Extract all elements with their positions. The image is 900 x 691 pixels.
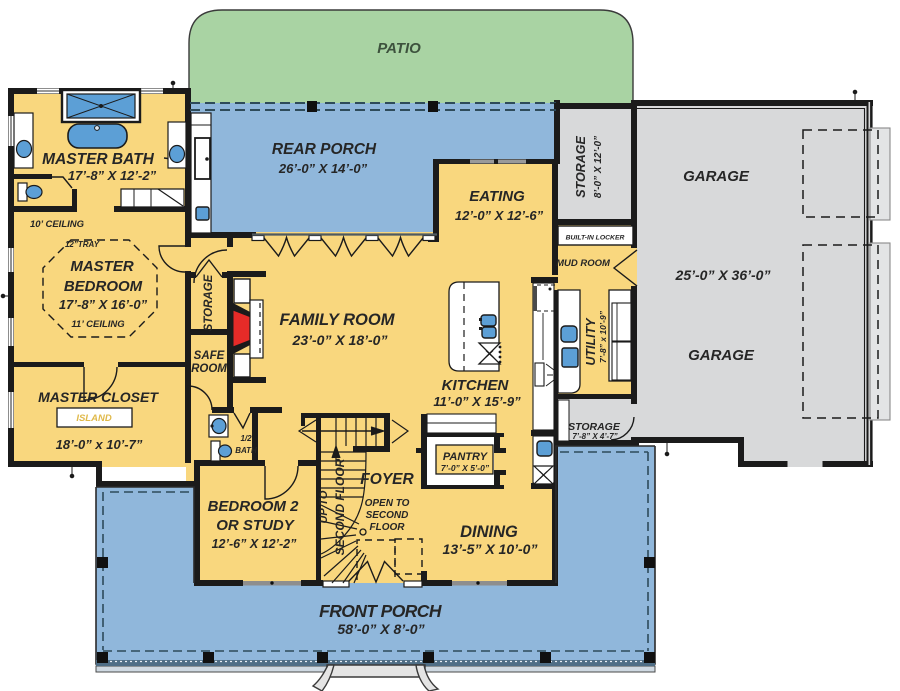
svg-text:GARAGE: GARAGE: [688, 347, 755, 364]
svg-text:11’ CEILING: 11’ CEILING: [71, 319, 125, 330]
svg-text:UTILITY: UTILITY: [584, 317, 598, 366]
svg-text:BATH: BATH: [235, 446, 257, 455]
svg-text:GARAGE: GARAGE: [683, 168, 750, 185]
svg-text:FLOOR: FLOOR: [370, 522, 406, 533]
svg-text:12’-6” X 12’-2”: 12’-6” X 12’-2”: [212, 537, 298, 551]
svg-text:1/2: 1/2: [240, 434, 252, 443]
svg-text:58’-0” X 8’-0”: 58’-0” X 8’-0”: [337, 621, 424, 637]
svg-text:ISLAND: ISLAND: [76, 413, 112, 424]
svg-text:12’-0” X 12’-6”: 12’-0” X 12’-6”: [455, 208, 544, 223]
svg-text:STORAGE: STORAGE: [203, 274, 215, 331]
svg-text:SECOND: SECOND: [366, 510, 409, 521]
svg-text:UP TO: UP TO: [318, 490, 330, 523]
svg-text:17’-8” X 12’-2”: 17’-8” X 12’-2”: [68, 168, 157, 183]
svg-text:BEDROOM: BEDROOM: [64, 278, 143, 295]
svg-text:PATIO: PATIO: [377, 40, 421, 57]
svg-text:FOYER: FOYER: [360, 471, 414, 488]
svg-text:FAMILY ROOM: FAMILY ROOM: [280, 311, 396, 329]
svg-text:MUD ROOM: MUD ROOM: [556, 258, 611, 269]
svg-text:BEDROOM 2: BEDROOM 2: [208, 498, 300, 515]
svg-text:REAR PORCH: REAR PORCH: [272, 141, 377, 158]
svg-text:EATING: EATING: [469, 188, 525, 205]
svg-text:7’-0” X 5’-0”: 7’-0” X 5’-0”: [441, 463, 490, 473]
svg-text:11’-0” X 15’-9”: 11’-0” X 15’-9”: [433, 394, 521, 409]
svg-text:25’-0” X 36’-0”: 25’-0” X 36’-0”: [675, 267, 771, 283]
svg-text:26’-0” X 14’-0”: 26’-0” X 14’-0”: [278, 161, 368, 176]
svg-text:SAFE: SAFE: [194, 350, 225, 362]
svg-text:MASTER BATH: MASTER BATH: [42, 151, 154, 168]
svg-text:23’-0” X 18’-0”: 23’-0” X 18’-0”: [292, 332, 388, 348]
svg-text:BUILT-IN LOCKER: BUILT-IN LOCKER: [566, 235, 625, 242]
svg-text:7’-8” x 10’-9”: 7’-8” x 10’-9”: [598, 310, 608, 363]
svg-text:OPEN TO: OPEN TO: [365, 498, 410, 509]
svg-text:8’-0” X 12’-0”: 8’-0” X 12’-0”: [593, 136, 604, 198]
svg-text:OR STUDY: OR STUDY: [216, 517, 296, 534]
svg-text:10’ CEILING: 10’ CEILING: [30, 219, 85, 230]
svg-text:12”TRAY: 12”TRAY: [65, 240, 100, 249]
svg-text:MASTER CLOSET: MASTER CLOSET: [38, 389, 159, 405]
svg-text:STORAGE: STORAGE: [574, 136, 588, 198]
svg-text:17’-8” X 16’-0”: 17’-8” X 16’-0”: [59, 297, 148, 312]
svg-text:ROOM: ROOM: [191, 363, 227, 375]
svg-text:DINING: DINING: [460, 523, 518, 541]
svg-text:MASTER: MASTER: [70, 258, 134, 275]
svg-text:SECOND FLOOR: SECOND FLOOR: [333, 458, 347, 555]
svg-text:PANTRY: PANTRY: [443, 451, 489, 463]
svg-text:7’-8” X 4’-7”: 7’-8” X 4’-7”: [572, 432, 617, 441]
svg-text:18’-0” x 10’-7”: 18’-0” x 10’-7”: [56, 437, 143, 452]
svg-text:KITCHEN: KITCHEN: [442, 377, 510, 394]
svg-text:13’-5” X 10’-0”: 13’-5” X 10’-0”: [443, 541, 538, 557]
svg-text:FRONT PORCH: FRONT PORCH: [319, 601, 442, 621]
